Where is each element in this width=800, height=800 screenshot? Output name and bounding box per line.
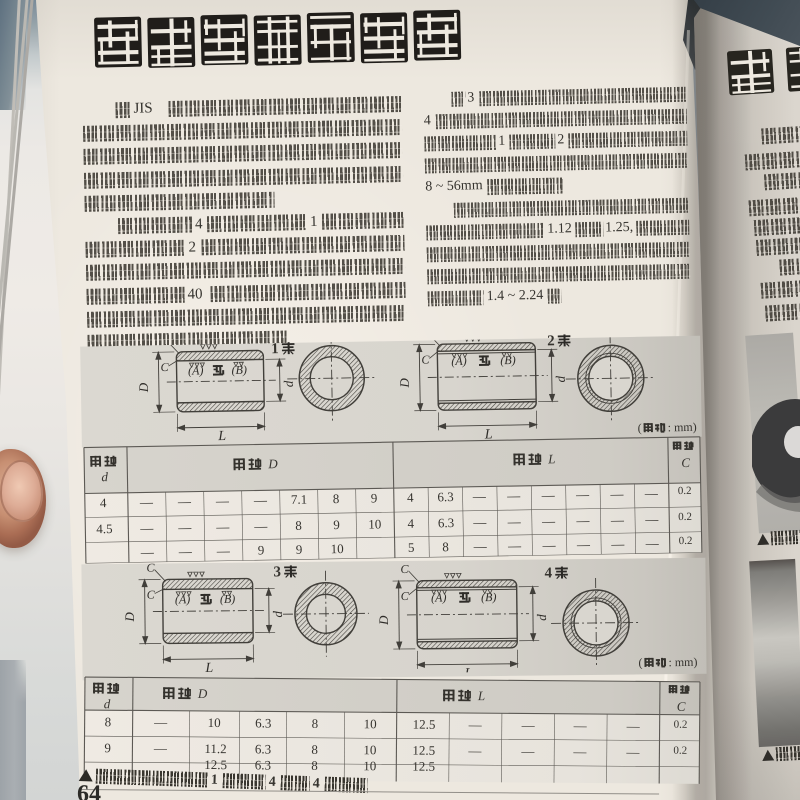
svg-text:D: D bbox=[122, 611, 137, 622]
svg-text:(B): (B) bbox=[481, 590, 496, 604]
svg-text:C: C bbox=[146, 561, 155, 575]
svg-text:C: C bbox=[147, 588, 156, 602]
svg-text:C: C bbox=[401, 589, 410, 603]
svg-text:d: d bbox=[270, 610, 285, 617]
svg-text:L: L bbox=[204, 661, 213, 676]
svg-text:C: C bbox=[400, 562, 409, 576]
svg-text:D: D bbox=[376, 615, 391, 626]
svg-text:d: d bbox=[534, 614, 549, 621]
svg-text:(B): (B) bbox=[220, 592, 235, 606]
